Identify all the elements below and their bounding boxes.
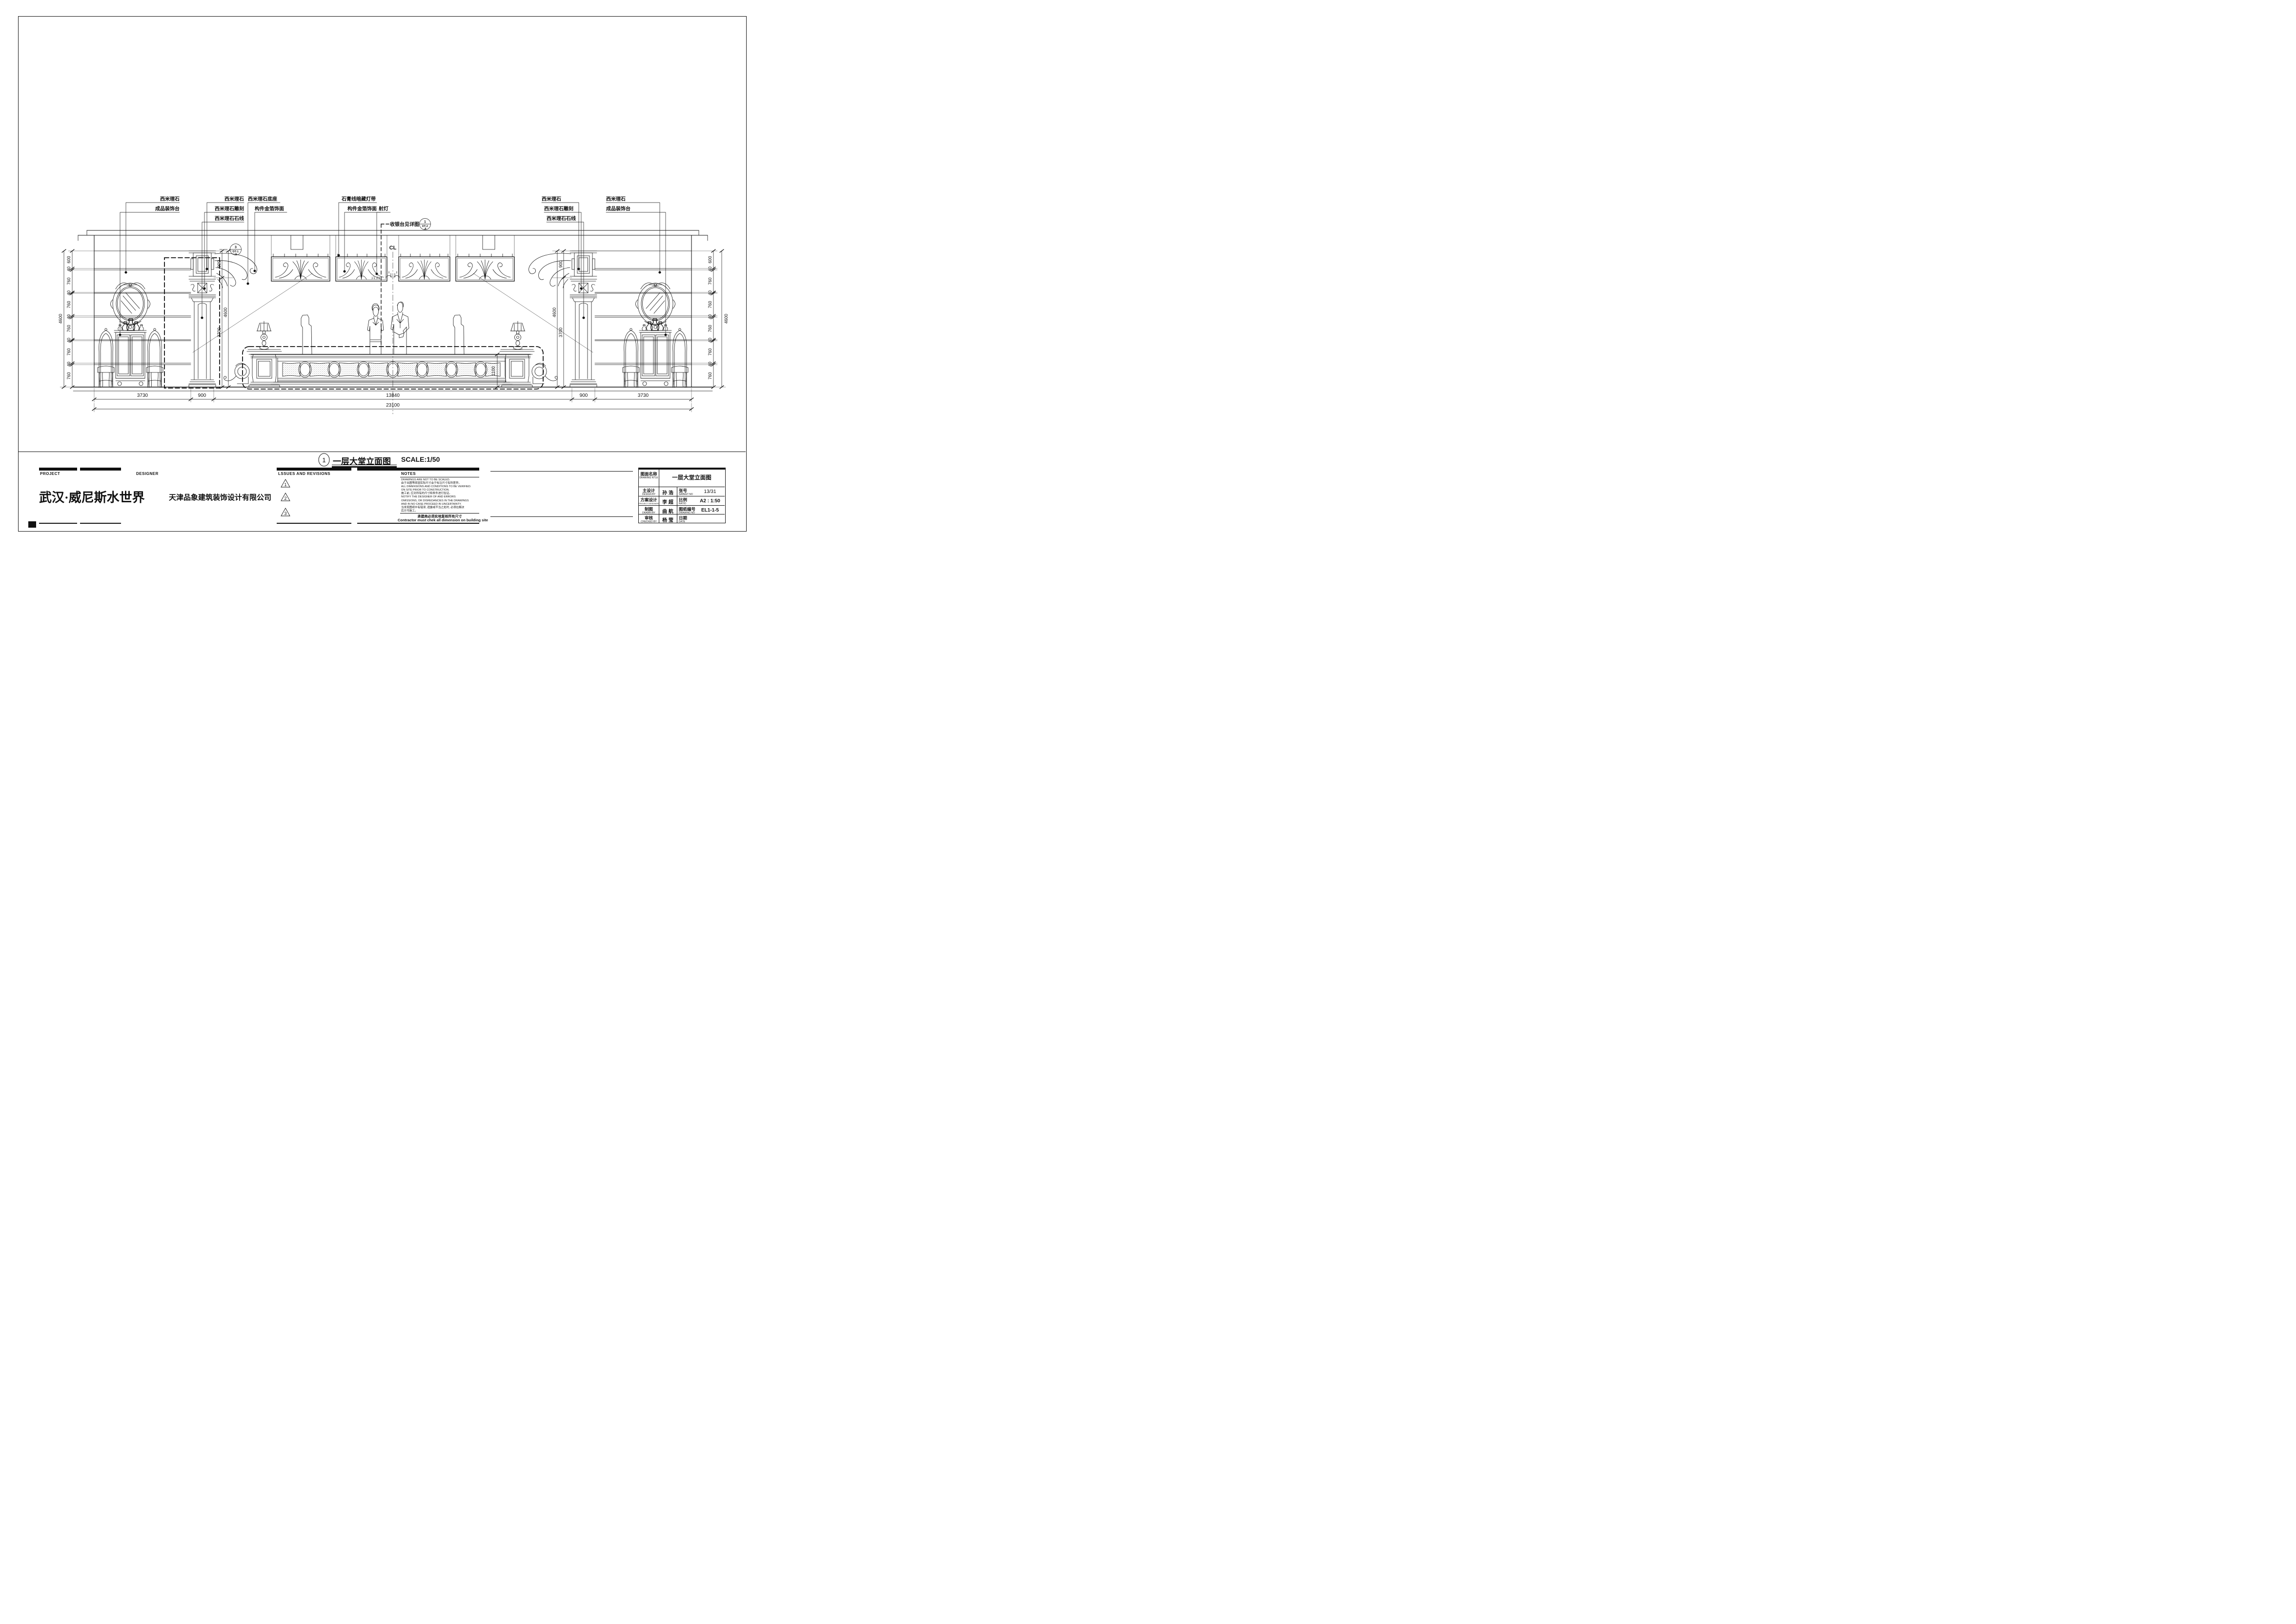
svg-text:40: 40: [708, 290, 712, 295]
figure-silhouette-right: [453, 315, 464, 354]
table-name-label: 图面名称: [639, 472, 659, 476]
svg-text:760: 760: [66, 325, 71, 332]
notes-text: DRAWINGS ARE NOT TO BE SCALED. 由于出图等原因实际…: [401, 478, 484, 513]
svg-text:40: 40: [708, 267, 712, 271]
svg-text:4600: 4600: [223, 308, 228, 317]
svg-text:1: 1: [424, 221, 426, 224]
table-lamp-right: [510, 321, 525, 349]
wall-furniture-right: [623, 283, 688, 388]
titleblock-bar-2: [80, 468, 121, 471]
svg-text:40: 40: [66, 338, 71, 343]
svg-text:-6: -6: [235, 253, 237, 256]
corbel-right: [529, 253, 571, 288]
corbel-left: [215, 253, 257, 288]
revision-triangle-2: 2: [281, 493, 290, 501]
reception-desk: [224, 321, 558, 387]
svg-text:西米理石底座: 西米理石底座: [248, 196, 277, 202]
detail-circle-cashier: 1 DT-2 -8: [420, 219, 431, 231]
svg-text:760: 760: [708, 348, 712, 355]
titleblock-bar-4: [357, 468, 479, 471]
titleblock-bar-1: [39, 468, 77, 471]
svg-text:40: 40: [66, 362, 71, 367]
svg-text:4600: 4600: [552, 308, 557, 317]
svg-text:3700: 3700: [558, 328, 563, 337]
svg-text:4600: 4600: [724, 314, 729, 324]
svg-text:西米理石: 西米理石: [606, 196, 626, 202]
svg-text:1: 1: [322, 456, 325, 464]
svg-text:40: 40: [66, 314, 71, 319]
callout-left-wall-2: 成品装饰台: [155, 206, 180, 212]
revisions-label: LSSUES AND REVISIONS: [278, 472, 330, 476]
empty-block-bottom-rule: [490, 516, 633, 517]
svg-text:760: 760: [708, 277, 712, 285]
drawing-scale: SCALE:1/50: [401, 455, 440, 463]
callout-cashier: 收银台见详图: [390, 221, 419, 227]
dim-desk-height: 1100: [491, 366, 496, 375]
dim-overall-width: 23100: [386, 403, 400, 408]
project-label: PROJECT: [40, 472, 60, 476]
svg-text:西米理石雕刻: 西米理石雕刻: [215, 206, 244, 212]
designer-name: 天津品象建筑装饰设计有限公司: [169, 492, 271, 502]
titleblock-bar-3: [277, 468, 351, 471]
svg-text:3730: 3730: [137, 393, 148, 398]
svg-text:40: 40: [708, 338, 712, 343]
svg-text:3: 3: [284, 511, 286, 516]
callout-spotlight: 射灯: [378, 206, 388, 212]
svg-text:760: 760: [66, 348, 71, 355]
drawing-sheet: CL 西米理石 成品装饰台 西米理石 西米理石雕刻 西米理石石线 西米理石底座 …: [0, 0, 765, 541]
svg-text:3: 3: [235, 246, 237, 249]
svg-text:西米理石石线: 西米理石石线: [215, 215, 244, 222]
svg-text:600: 600: [708, 256, 712, 263]
svg-text:900: 900: [217, 260, 222, 267]
contractor-note-en: Contractor must chek all dimension on bu…: [398, 518, 482, 522]
project-name: 武汉·威尼斯水世界: [39, 488, 145, 506]
dimensions: 600 40 760 40 760 40 760 40 760 40 760 4…: [58, 249, 729, 412]
svg-text:40: 40: [708, 362, 712, 367]
drawing-info-table: 图面名称 DRAWING NTLE 一层大堂立面图 主设计 DESIGN BY …: [638, 468, 726, 523]
revision-triangle-3: 3: [281, 508, 290, 516]
svg-text:3700: 3700: [217, 328, 222, 337]
figure-silhouette-left: [301, 315, 312, 354]
notes-label: NOTES: [401, 472, 416, 476]
svg-text:西米理石雕刻: 西米理石雕刻: [544, 206, 573, 212]
designer-label: DESIGNER: [136, 472, 159, 476]
svg-text:3730: 3730: [638, 393, 649, 398]
svg-text:4600: 4600: [58, 314, 63, 324]
wall-furniture-left: [98, 283, 163, 388]
title-separator: [18, 452, 746, 452]
revision-triangle-1: 1: [281, 479, 290, 488]
table-drawing-name: 一层大堂立面图: [659, 473, 725, 481]
svg-text:构件金箔饰面: 构件金箔饰面: [255, 206, 284, 212]
svg-text:构件金箔饰面: 构件金箔饰面: [347, 206, 377, 212]
centerline: CL: [389, 245, 397, 414]
svg-text:西米理石: 西米理石: [542, 196, 561, 202]
svg-text:-8: -8: [424, 228, 427, 231]
table-lamp-left: [257, 321, 271, 349]
svg-text:600: 600: [66, 256, 71, 263]
svg-text:900: 900: [198, 393, 206, 398]
svg-text:成品装饰台: 成品装饰台: [606, 206, 630, 212]
svg-text:40: 40: [66, 267, 71, 271]
svg-text:40: 40: [66, 290, 71, 295]
svg-text:900: 900: [580, 393, 588, 398]
callout-left-wall-1: 西米理石: [160, 196, 180, 202]
svg-text:760: 760: [708, 301, 712, 308]
svg-text:石膏线暗藏灯带: 石膏线暗藏灯带: [341, 196, 376, 202]
corner-mark: [28, 521, 36, 528]
svg-text:2: 2: [284, 496, 286, 501]
title-number-bubble: 1: [317, 453, 332, 468]
svg-text:760: 760: [708, 325, 712, 332]
svg-text:760: 760: [66, 372, 71, 379]
svg-text:760: 760: [66, 301, 71, 308]
empty-block-top-rule: [490, 471, 633, 472]
centerline-label: CL: [389, 245, 397, 251]
svg-text:西米理石: 西米理石: [224, 196, 244, 202]
svg-text:40: 40: [708, 314, 712, 319]
svg-text:760: 760: [66, 277, 71, 285]
svg-text:西米理石石线: 西米理石石线: [547, 215, 576, 222]
svg-text:760: 760: [708, 372, 712, 379]
svg-text:900: 900: [558, 260, 563, 267]
svg-text:1: 1: [284, 482, 286, 487]
title-underline: [332, 465, 397, 465]
svg-text:13840: 13840: [386, 393, 400, 398]
